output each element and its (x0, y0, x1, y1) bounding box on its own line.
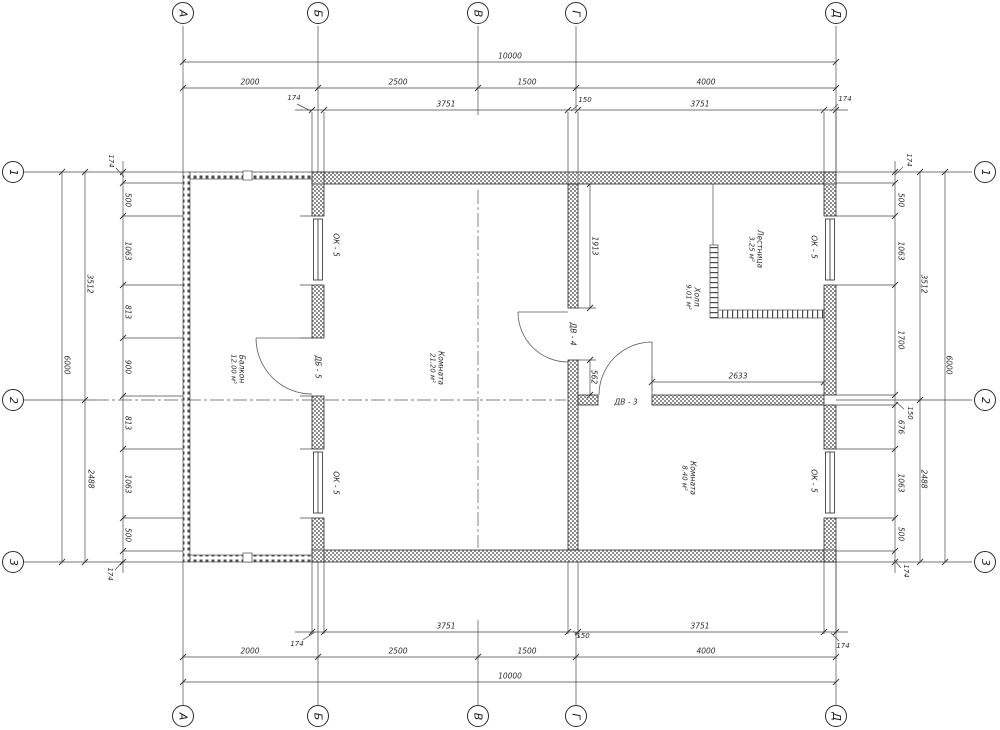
room-name: Комната (689, 461, 698, 495)
room-name: Лестница (756, 230, 765, 268)
axis-marker-row-2-left: 2 (2, 389, 24, 411)
dim-rchain-1700: 1700 (897, 330, 906, 349)
room-area: 8.40 м² (680, 461, 688, 495)
dim-overall-width-top: 10000 (498, 52, 522, 61)
axis-label: Б (311, 9, 324, 17)
axis-marker-row-1-right: 1 (974, 161, 996, 183)
axis-marker-col-g-top: Г (565, 2, 587, 24)
dim-rchain-1063-top: 1063 (897, 241, 906, 260)
axis-marker-col-b-top: Б (307, 2, 329, 24)
dim-wall-174-top-left: 174 (287, 94, 300, 102)
plan-drawing (0, 0, 1000, 730)
axis-label: Г (569, 713, 582, 719)
room-name: Балкон (238, 354, 247, 383)
dim-562: 562 (590, 370, 599, 384)
room-name: Холл (693, 284, 702, 309)
room-area: 21.20 м² (428, 351, 436, 385)
room-name: Комната (437, 351, 446, 385)
window-left-top (314, 219, 323, 280)
room-area: 3.25 м² (747, 230, 755, 268)
room-label-bedroom: Комната 8.40 м² (680, 461, 697, 495)
dim-3512-left: 3512 (86, 274, 95, 293)
dim-rchain-676: 676 (897, 420, 906, 434)
axis-label: 2 (7, 397, 20, 404)
axis-label: 1 (979, 169, 992, 176)
room-area: 12.00 м² (229, 354, 237, 383)
axis-marker-col-a-top: А (172, 2, 194, 24)
dim-3512-right: 3512 (920, 274, 929, 293)
axis-label: Д (830, 9, 843, 18)
balcony-door-label: ДБ - 5 (314, 353, 323, 380)
room-door-swing (518, 312, 568, 362)
dim-span-bv-bottom: 2500 (388, 647, 407, 656)
dim-lchain-174-bottom: 174 (106, 567, 114, 580)
dim-span-ab-bottom: 2000 (240, 647, 259, 656)
axis-label: В (471, 712, 484, 720)
balcony-railing (183, 171, 312, 562)
dim-rchain-150: 150 (906, 406, 914, 419)
axis-marker-col-d-bottom: Д (825, 705, 847, 727)
window-label-right-top: ОК - 5 (810, 235, 819, 258)
window-right-bottom (826, 452, 835, 513)
axis-marker-col-v-top: В (467, 2, 489, 24)
dim-lchain-1063-top: 1063 (124, 241, 133, 260)
dim-rchain-1063-bottom: 1063 (897, 473, 906, 492)
floor-plan-sheet: А Б В Г Д А Б В Г Д 1 2 3 1 2 3 10000 20… (0, 0, 1000, 730)
window-label-left-top: ОК - 5 (332, 233, 341, 256)
dim-lchain-500-bottom: 500 (124, 528, 133, 542)
room-label-balcony: Балкон 12.00 м² (229, 354, 246, 383)
dim-3751-top-right: 3751 (690, 100, 709, 109)
axis-label: А (177, 9, 190, 17)
dim-2488-left: 2488 (87, 469, 96, 488)
room-door-label: ДВ - 4 (569, 320, 578, 347)
room-label-hall: Холл 9.01 м² (684, 284, 701, 309)
dim-150-top: 150 (578, 96, 591, 104)
dim-span-ab-top: 2000 (240, 78, 259, 87)
balcony-door-swing (256, 338, 312, 394)
dim-overall-height-left: 6000 (63, 355, 72, 374)
axis-marker-row-3-left: 3 (2, 551, 24, 573)
dim-3751-bottom-left: 3751 (436, 622, 455, 631)
dim-wall-174-bottom-right: 174 (836, 642, 849, 650)
dim-lchain-174-top: 174 (107, 154, 115, 167)
window-left-bottom (314, 452, 323, 513)
window-label-right-bottom: ОК - 5 (810, 469, 819, 492)
dim-2633: 2633 (728, 372, 747, 381)
axis-marker-col-b-bottom: Б (307, 705, 329, 727)
hall-door-swing (599, 342, 652, 395)
dim-3751-bottom-right: 3751 (690, 622, 709, 631)
axis-label: А (177, 712, 190, 720)
axis-marker-row-2-right: 2 (974, 389, 996, 411)
dim-overall-height-right: 6000 (945, 355, 954, 374)
hall-door-label: ДВ - 3 (612, 398, 639, 407)
axis-label: Д (830, 712, 843, 721)
centerlines (95, 190, 566, 548)
dim-lchain-813-bottom: 813 (124, 416, 133, 430)
dim-lchain-500-top: 500 (124, 193, 133, 207)
dim-lchain-900: 900 (124, 360, 133, 374)
dim-2488-right: 2488 (920, 469, 929, 488)
axis-marker-row-1-left: 1 (2, 161, 24, 183)
dim-span-bv-top: 2500 (388, 78, 407, 87)
dim-span-vg-bottom: 1500 (517, 647, 536, 656)
axis-label: 2 (979, 397, 992, 404)
dim-lchain-813-top: 813 (124, 305, 133, 319)
dim-1913: 1913 (591, 236, 600, 255)
axis-marker-row-3-right: 3 (974, 551, 996, 573)
dim-rchain-500-top: 500 (897, 193, 906, 207)
dim-150-bottom: 150 (576, 632, 589, 640)
room-label-living: Комната 21.20 м² (428, 351, 445, 385)
window-label-left-bottom: ОК - 5 (332, 471, 341, 494)
axis-label: 1 (7, 169, 20, 176)
axis-marker-col-a-bottom: А (172, 705, 194, 727)
dim-3751-top-left: 3751 (436, 100, 455, 109)
dim-rchain-500-bottom: 500 (897, 527, 906, 541)
axis-label: 3 (7, 559, 20, 566)
dim-wall-174-bottom-left: 174 (290, 640, 303, 648)
dim-wall-174-top-right: 174 (838, 95, 851, 103)
dim-rchain-174-top: 174 (905, 153, 913, 166)
axis-label: В (471, 9, 484, 17)
room-label-stairs: Лестница 3.25 м² (747, 230, 764, 268)
axis-marker-col-g-bottom: Г (565, 705, 587, 727)
dim-span-vg-top: 1500 (517, 78, 536, 87)
axis-marker-col-v-bottom: В (467, 705, 489, 727)
stairs (710, 184, 824, 318)
dim-overall-width-bottom: 10000 (498, 672, 522, 681)
dim-span-gd-top: 4000 (696, 78, 715, 87)
window-right-top (826, 219, 835, 280)
dim-lchain-1063-bottom: 1063 (124, 474, 133, 493)
room-area: 9.01 м² (684, 284, 692, 309)
axis-marker-col-d-top: Д (825, 2, 847, 24)
dim-span-gd-bottom: 4000 (696, 647, 715, 656)
dim-rchain-174-bottom: 174 (902, 564, 910, 577)
axis-label: Б (311, 712, 324, 720)
axis-label: Г (569, 10, 582, 16)
dim-ticks (59, 59, 948, 685)
axis-label: 3 (979, 559, 992, 566)
